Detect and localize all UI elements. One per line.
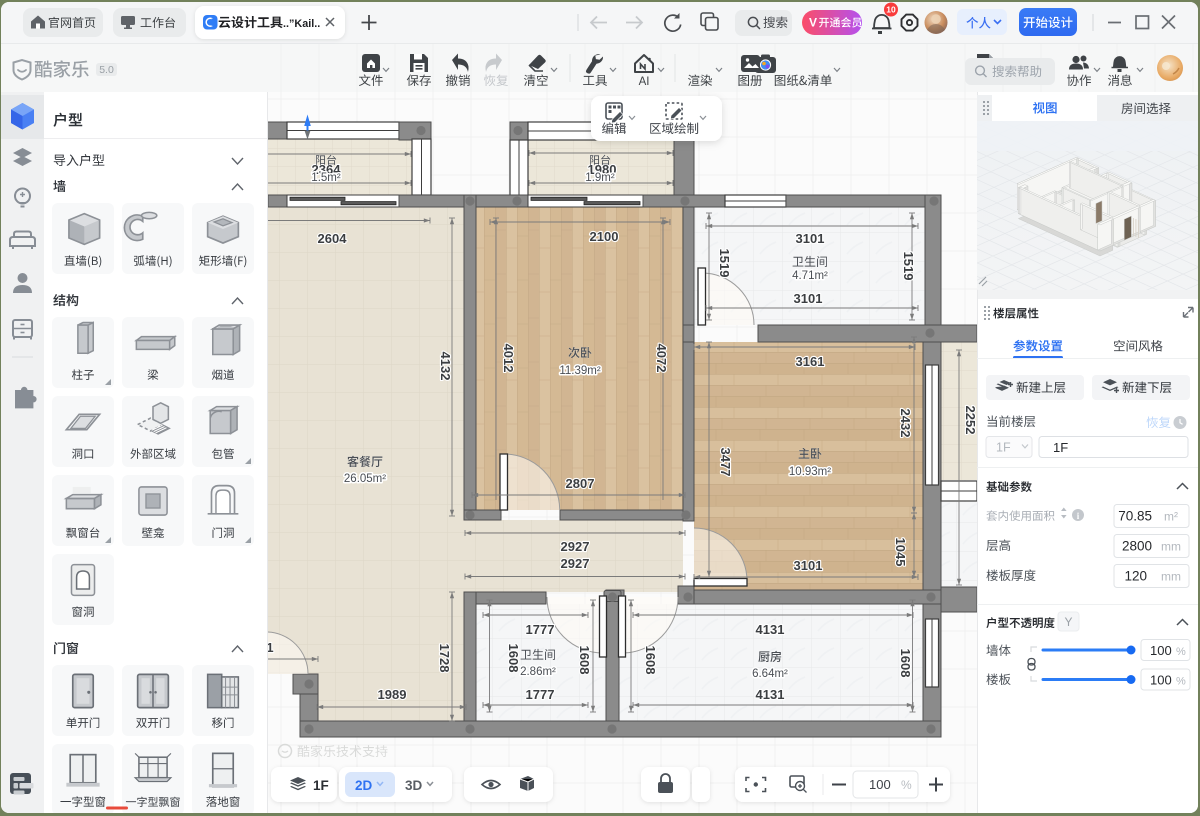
svg-text:4131: 4131 bbox=[756, 687, 785, 702]
svg-text:Y: Y bbox=[1064, 615, 1072, 629]
svg-text:1777: 1777 bbox=[526, 687, 555, 702]
svg-text:2252: 2252 bbox=[963, 406, 978, 435]
svg-text:100: 100 bbox=[1150, 643, 1172, 658]
svg-text:100: 100 bbox=[1150, 673, 1172, 688]
svg-text:1.5m²: 1.5m² bbox=[311, 172, 341, 184]
svg-text:1F: 1F bbox=[996, 441, 1011, 455]
svg-text:11.39m²: 11.39m² bbox=[559, 365, 601, 377]
svg-text:1608: 1608 bbox=[506, 644, 521, 673]
svg-text:%: % bbox=[1176, 676, 1186, 688]
svg-text:4132: 4132 bbox=[438, 352, 453, 381]
svg-text:2D: 2D bbox=[355, 778, 373, 793]
svg-text:2.86m²: 2.86m² bbox=[520, 666, 556, 678]
svg-text:26.05m²: 26.05m² bbox=[344, 473, 386, 485]
svg-text:%: % bbox=[1176, 646, 1186, 658]
svg-text:m²: m² bbox=[1164, 510, 1178, 524]
svg-text:70.85: 70.85 bbox=[1118, 509, 1152, 524]
svg-text:2432: 2432 bbox=[898, 409, 913, 438]
svg-text:1608: 1608 bbox=[898, 649, 913, 678]
svg-text:2604: 2604 bbox=[318, 231, 348, 246]
svg-text:1.9m²: 1.9m² bbox=[585, 172, 615, 184]
svg-text:2100: 2100 bbox=[590, 229, 619, 244]
svg-text:..”Kail..: ..”Kail.. bbox=[283, 18, 320, 30]
svg-text:3101: 3101 bbox=[794, 558, 823, 573]
svg-text:AI: AI bbox=[639, 76, 650, 88]
svg-text:2800: 2800 bbox=[1122, 539, 1152, 554]
svg-text:1045: 1045 bbox=[893, 538, 908, 567]
svg-text:10: 10 bbox=[886, 5, 896, 15]
svg-text:3101: 3101 bbox=[794, 291, 823, 306]
svg-text:120: 120 bbox=[1124, 569, 1147, 584]
svg-text:%: % bbox=[901, 778, 912, 792]
svg-text:5.0: 5.0 bbox=[99, 64, 114, 76]
svg-text:2807: 2807 bbox=[566, 476, 595, 491]
svg-text:V: V bbox=[809, 16, 817, 30]
svg-text:2927: 2927 bbox=[561, 539, 590, 554]
svg-text:100: 100 bbox=[869, 777, 891, 792]
svg-text:1F: 1F bbox=[313, 778, 329, 793]
svg-text:1989: 1989 bbox=[378, 687, 407, 702]
svg-text:mm: mm bbox=[1161, 540, 1181, 554]
svg-text:1519: 1519 bbox=[717, 249, 732, 278]
svg-text:2927: 2927 bbox=[561, 556, 590, 571]
svg-text:10.93m²: 10.93m² bbox=[789, 466, 831, 478]
svg-text:6.64m²: 6.64m² bbox=[752, 668, 788, 680]
svg-text:3101: 3101 bbox=[796, 231, 825, 246]
svg-text:4131: 4131 bbox=[756, 622, 785, 637]
svg-text:4.71m²: 4.71m² bbox=[792, 270, 828, 282]
svg-text:4012: 4012 bbox=[501, 344, 516, 373]
svg-text:3161: 3161 bbox=[796, 354, 825, 369]
svg-text:3477: 3477 bbox=[718, 448, 733, 477]
svg-text:1777: 1777 bbox=[526, 622, 555, 637]
svg-text:1F: 1F bbox=[1053, 440, 1068, 455]
svg-text:4072: 4072 bbox=[654, 344, 669, 373]
svg-text:1608: 1608 bbox=[643, 646, 658, 675]
svg-text:mm: mm bbox=[1161, 570, 1181, 584]
svg-text:3D: 3D bbox=[405, 778, 423, 793]
svg-text:1728: 1728 bbox=[437, 644, 452, 673]
svg-text:1608: 1608 bbox=[577, 646, 592, 675]
svg-text:1519: 1519 bbox=[901, 252, 916, 281]
